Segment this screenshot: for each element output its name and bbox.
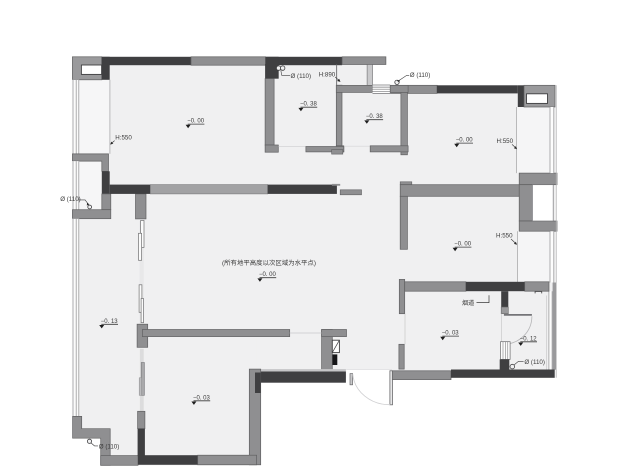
svg-text:Ø (110): Ø (110) <box>291 73 312 80</box>
svg-text:H:890: H:890 <box>319 72 336 79</box>
svg-text:Ø (110): Ø (110) <box>524 359 545 366</box>
svg-text:Ø (110): Ø (110) <box>410 72 431 79</box>
svg-text:Ø (110): Ø (110) <box>99 443 120 450</box>
svg-text:H:550: H:550 <box>496 233 513 240</box>
svg-text:H:550: H:550 <box>497 138 514 145</box>
svg-text:Ø (110): Ø (110) <box>60 196 81 203</box>
svg-text:烟道: 烟道 <box>462 299 474 307</box>
svg-text:(所有地平高度以次区域为水平点): (所有地平高度以次区域为水平点) <box>222 259 316 267</box>
svg-text:H:550: H:550 <box>115 135 132 142</box>
